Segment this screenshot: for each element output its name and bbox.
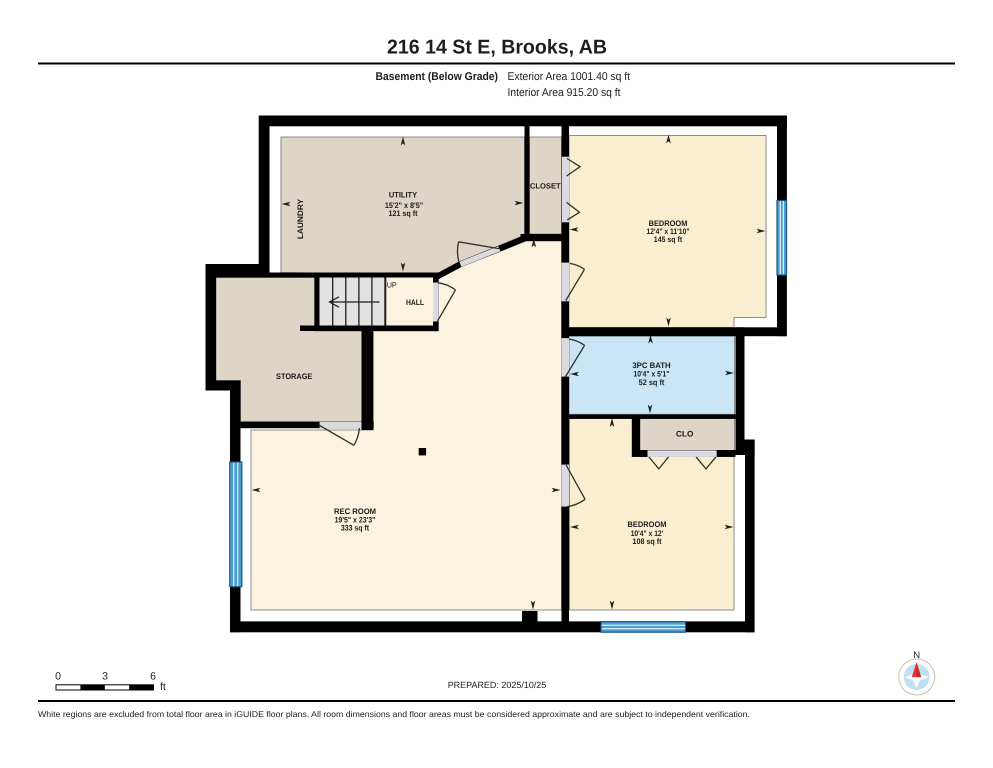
- svg-text:3: 3: [102, 671, 108, 683]
- svg-text:145 sq ft: 145 sq ft: [654, 235, 683, 244]
- svg-text:STORAGE: STORAGE: [276, 372, 313, 381]
- svg-text:UTILITY: UTILITY: [389, 191, 418, 200]
- svg-text:Exterior Area 1001.40 sq ft: Exterior Area 1001.40 sq ft: [508, 71, 631, 83]
- svg-text:Basement (Below Grade): Basement (Below Grade): [376, 71, 499, 83]
- svg-text:Interior Area 915.20 sq ft: Interior Area 915.20 sq ft: [508, 87, 622, 99]
- svg-text:121 sq ft: 121 sq ft: [389, 209, 418, 218]
- svg-text:216 14 St E, Brooks, AB: 216 14 St E, Brooks, AB: [387, 37, 607, 59]
- svg-text:PREPARED: 2025/10/25: PREPARED: 2025/10/25: [448, 680, 547, 690]
- svg-text:N: N: [913, 650, 920, 661]
- svg-text:White regions are excluded fro: White regions are excluded from total fl…: [38, 709, 750, 719]
- svg-text:LAUNDRY: LAUNDRY: [296, 198, 305, 239]
- svg-text:HALL: HALL: [406, 298, 424, 307]
- svg-text:0: 0: [55, 671, 61, 683]
- svg-text:CLO: CLO: [676, 430, 694, 439]
- svg-text:BEDROOM: BEDROOM: [628, 520, 667, 529]
- svg-text:108 sq ft: 108 sq ft: [633, 537, 662, 546]
- svg-text:UP: UP: [387, 281, 397, 290]
- svg-text:333 sq ft: 333 sq ft: [341, 523, 370, 532]
- svg-text:ft: ft: [160, 681, 166, 693]
- svg-text:6: 6: [150, 671, 156, 683]
- svg-text:CLOSET: CLOSET: [530, 182, 561, 191]
- svg-text:52 sq ft: 52 sq ft: [639, 378, 665, 387]
